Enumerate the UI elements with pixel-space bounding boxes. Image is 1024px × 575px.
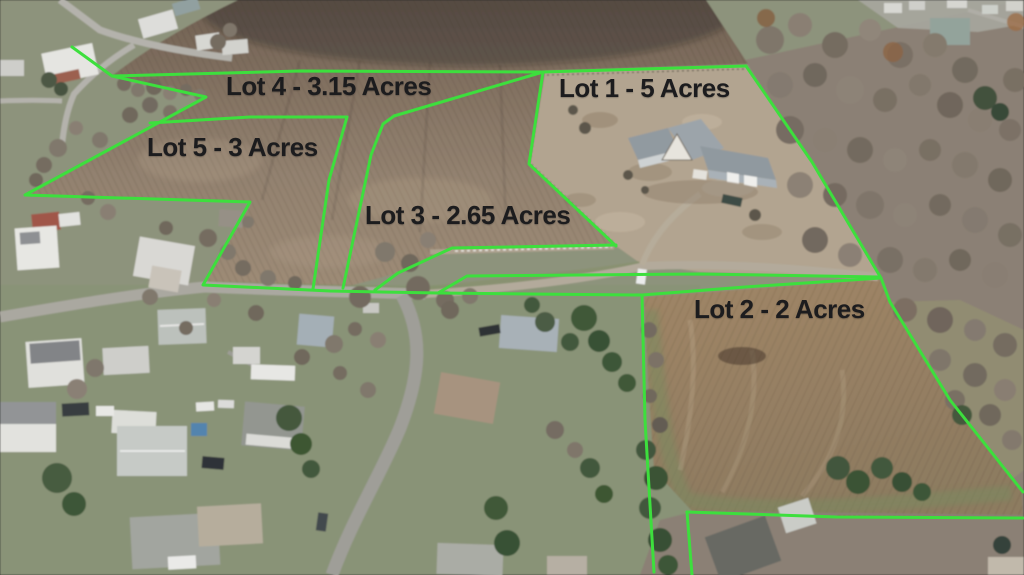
lot-label-lot-3: Lot 3 - 2.65 Acres [365, 202, 570, 228]
lot-label-lot-5: Lot 5 - 3 Acres [147, 134, 318, 160]
lot-label-lot-2: Lot 2 - 2 Acres [694, 296, 865, 322]
aerial-lot-map: Lot 1 - 5 Acres Lot 2 - 2 Acres Lot 3 - … [0, 0, 1024, 575]
aerial-photo [0, 0, 1024, 575]
lot-label-lot-1: Lot 1 - 5 Acres [559, 75, 730, 101]
lot-label-lot-4: Lot 4 - 3.15 Acres [226, 73, 431, 99]
